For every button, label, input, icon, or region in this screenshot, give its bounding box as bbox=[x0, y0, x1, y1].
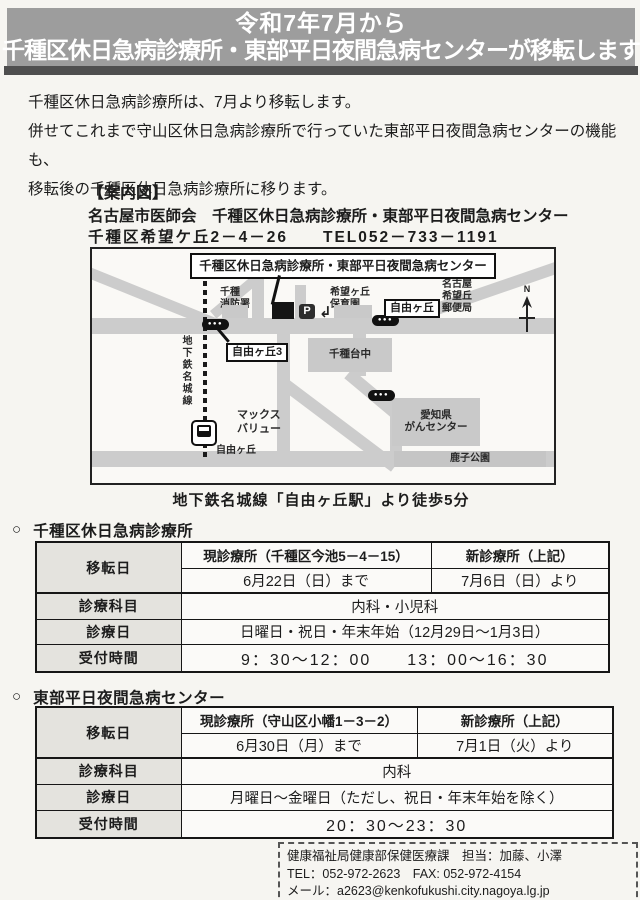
clinic-name-line: 名古屋市医師会 千種区休日急病診療所・東部平日夜間急病センター bbox=[88, 204, 569, 226]
post-office-label: 名古屋 希望丘 郵便局 bbox=[442, 279, 472, 315]
department-label-cell: 診療科目 bbox=[36, 593, 181, 619]
banner-underline bbox=[4, 66, 638, 75]
contact-box: 健康福祉局健康部保健医療課 担当：加藤、小澤 TEL：052-972-2623 … bbox=[278, 842, 638, 900]
section-bullet: ○ bbox=[12, 688, 21, 706]
clinic-address-line: 千種区希望ケ丘2－4－26 TEL052－733－1191 bbox=[88, 225, 499, 247]
map-title-pointer bbox=[271, 275, 281, 305]
station-label: 自由ヶ丘 bbox=[216, 445, 256, 457]
guide-map: 地下鉄名城線 千種 消防署 希望ヶ丘 保育園 名古屋 希望丘 郵便局 千種台中 … bbox=[90, 247, 556, 485]
treatment-days-label-cell: 診療日 bbox=[36, 784, 181, 810]
section-heading-tobu: ○ 東部平日夜間急病センター bbox=[12, 686, 225, 708]
clinic-marker bbox=[272, 302, 294, 319]
subway-line-label: 地下鉄名城線 bbox=[178, 335, 193, 407]
new-clinic-header-cell: 新診療所（上記） bbox=[431, 542, 609, 568]
bus-stop-callout-jiyugaoka3: 自由ヶ丘3 bbox=[226, 343, 288, 362]
new-from-cell: 7月6日（日）より bbox=[431, 568, 609, 593]
train-glyph bbox=[197, 425, 211, 437]
junior-high-label: 千種台中 bbox=[308, 348, 392, 360]
nursery-building bbox=[334, 305, 372, 318]
banner-line1: 令和7年7月から bbox=[235, 10, 407, 36]
map-caption: 地下鉄名城線「自由ヶ丘駅」より徒歩5分 bbox=[90, 489, 552, 510]
section-bullet: ○ bbox=[12, 521, 21, 539]
section-title: 千種区休日急病診療所 bbox=[33, 519, 193, 541]
section-heading-chikusa: ○ 千種区休日急病診療所 bbox=[12, 519, 193, 541]
reception-hours-label-cell: 受付時間 bbox=[36, 644, 181, 672]
treatment-days-label-cell: 診療日 bbox=[36, 619, 181, 644]
current-until-cell: 6月30日（月）まで bbox=[181, 733, 417, 758]
move-date-label-cell: 移転日 bbox=[36, 707, 181, 758]
tobu-center-table: 移転日 現診療所（守山区小幡1－3－2） 新診療所（上記） 6月30日（月）まで… bbox=[35, 706, 614, 839]
scanned-notice-page: 令和7年7月から 千種区休日急病診療所・東部平日夜間急病センターが移転します 千… bbox=[0, 0, 640, 900]
section-title: 東部平日夜間急病センター bbox=[33, 686, 225, 708]
current-clinic-header-cell: 現診療所（守山区小幡1－3－2） bbox=[181, 707, 417, 733]
subway-station-icon bbox=[191, 420, 217, 446]
title-banner: 令和7年7月から 千種区休日急病診療所・東部平日夜間急病センターが移転します bbox=[7, 8, 635, 66]
contact-phone-line: TEL：052-972-2623 FAX: 052-972-4154 bbox=[287, 866, 629, 884]
contact-email-line: メール：a2623@kenkofukushi.city.nagoya.lg.jp bbox=[287, 883, 629, 900]
compass-n-label: N bbox=[516, 285, 538, 294]
parking-icon: P bbox=[299, 304, 315, 319]
department-label-cell: 診療科目 bbox=[36, 758, 181, 784]
fire-station-building bbox=[222, 305, 248, 318]
new-clinic-header-cell: 新診療所（上記） bbox=[417, 707, 613, 733]
reception-hours-value-cell: 9：30～12：00 13：00～16：30 bbox=[181, 644, 609, 672]
treatment-days-value-cell: 月曜日～金曜日（ただし、祝日・年末年始を除く） bbox=[181, 784, 613, 810]
guide-map-heading: 【案内図】 bbox=[88, 179, 168, 203]
cancer-center-label: 愛知県 がんセンター bbox=[392, 409, 480, 433]
bus-stop-icon: ●●● bbox=[368, 390, 395, 401]
treatment-days-value-cell: 日曜日・祝日・年末年始（12月29日～1月3日） bbox=[181, 619, 609, 644]
move-date-label-cell: 移転日 bbox=[36, 542, 181, 593]
current-clinic-header-cell: 現診療所（千種区今池5－4－15） bbox=[181, 542, 431, 568]
reception-hours-label-cell: 受付時間 bbox=[36, 810, 181, 838]
chikusa-clinic-table: 移転日 現診療所（千種区今池5－4－15） 新診療所（上記） 6月22日（日）ま… bbox=[35, 541, 610, 673]
map-title-box: 千種区休日急病診療所・東部平日夜間急病センター bbox=[190, 253, 496, 279]
park-label: 鹿子公園 bbox=[394, 453, 546, 465]
current-until-cell: 6月22日（日）まで bbox=[181, 568, 431, 593]
entrance-arrow-icon: ↲ bbox=[319, 303, 332, 321]
reception-hours-value-cell: 20：30～23：30 bbox=[181, 810, 613, 838]
contact-department-line: 健康福祉局健康部保健医療課 担当：加藤、小澤 bbox=[287, 848, 629, 866]
compass-arrow bbox=[516, 294, 538, 334]
north-compass-icon: N bbox=[516, 285, 538, 339]
banner-line2: 千種区休日急病診療所・東部平日夜間急病センターが移転します bbox=[2, 36, 640, 64]
department-value-cell: 内科・小児科 bbox=[181, 593, 609, 619]
bus-stop-callout-jiyugaoka: 自由ヶ丘 bbox=[384, 299, 440, 318]
new-from-cell: 7月1日（火）より bbox=[417, 733, 613, 758]
department-value-cell: 内科 bbox=[181, 758, 613, 784]
supermarket-label: マックス バリュー bbox=[237, 408, 281, 436]
